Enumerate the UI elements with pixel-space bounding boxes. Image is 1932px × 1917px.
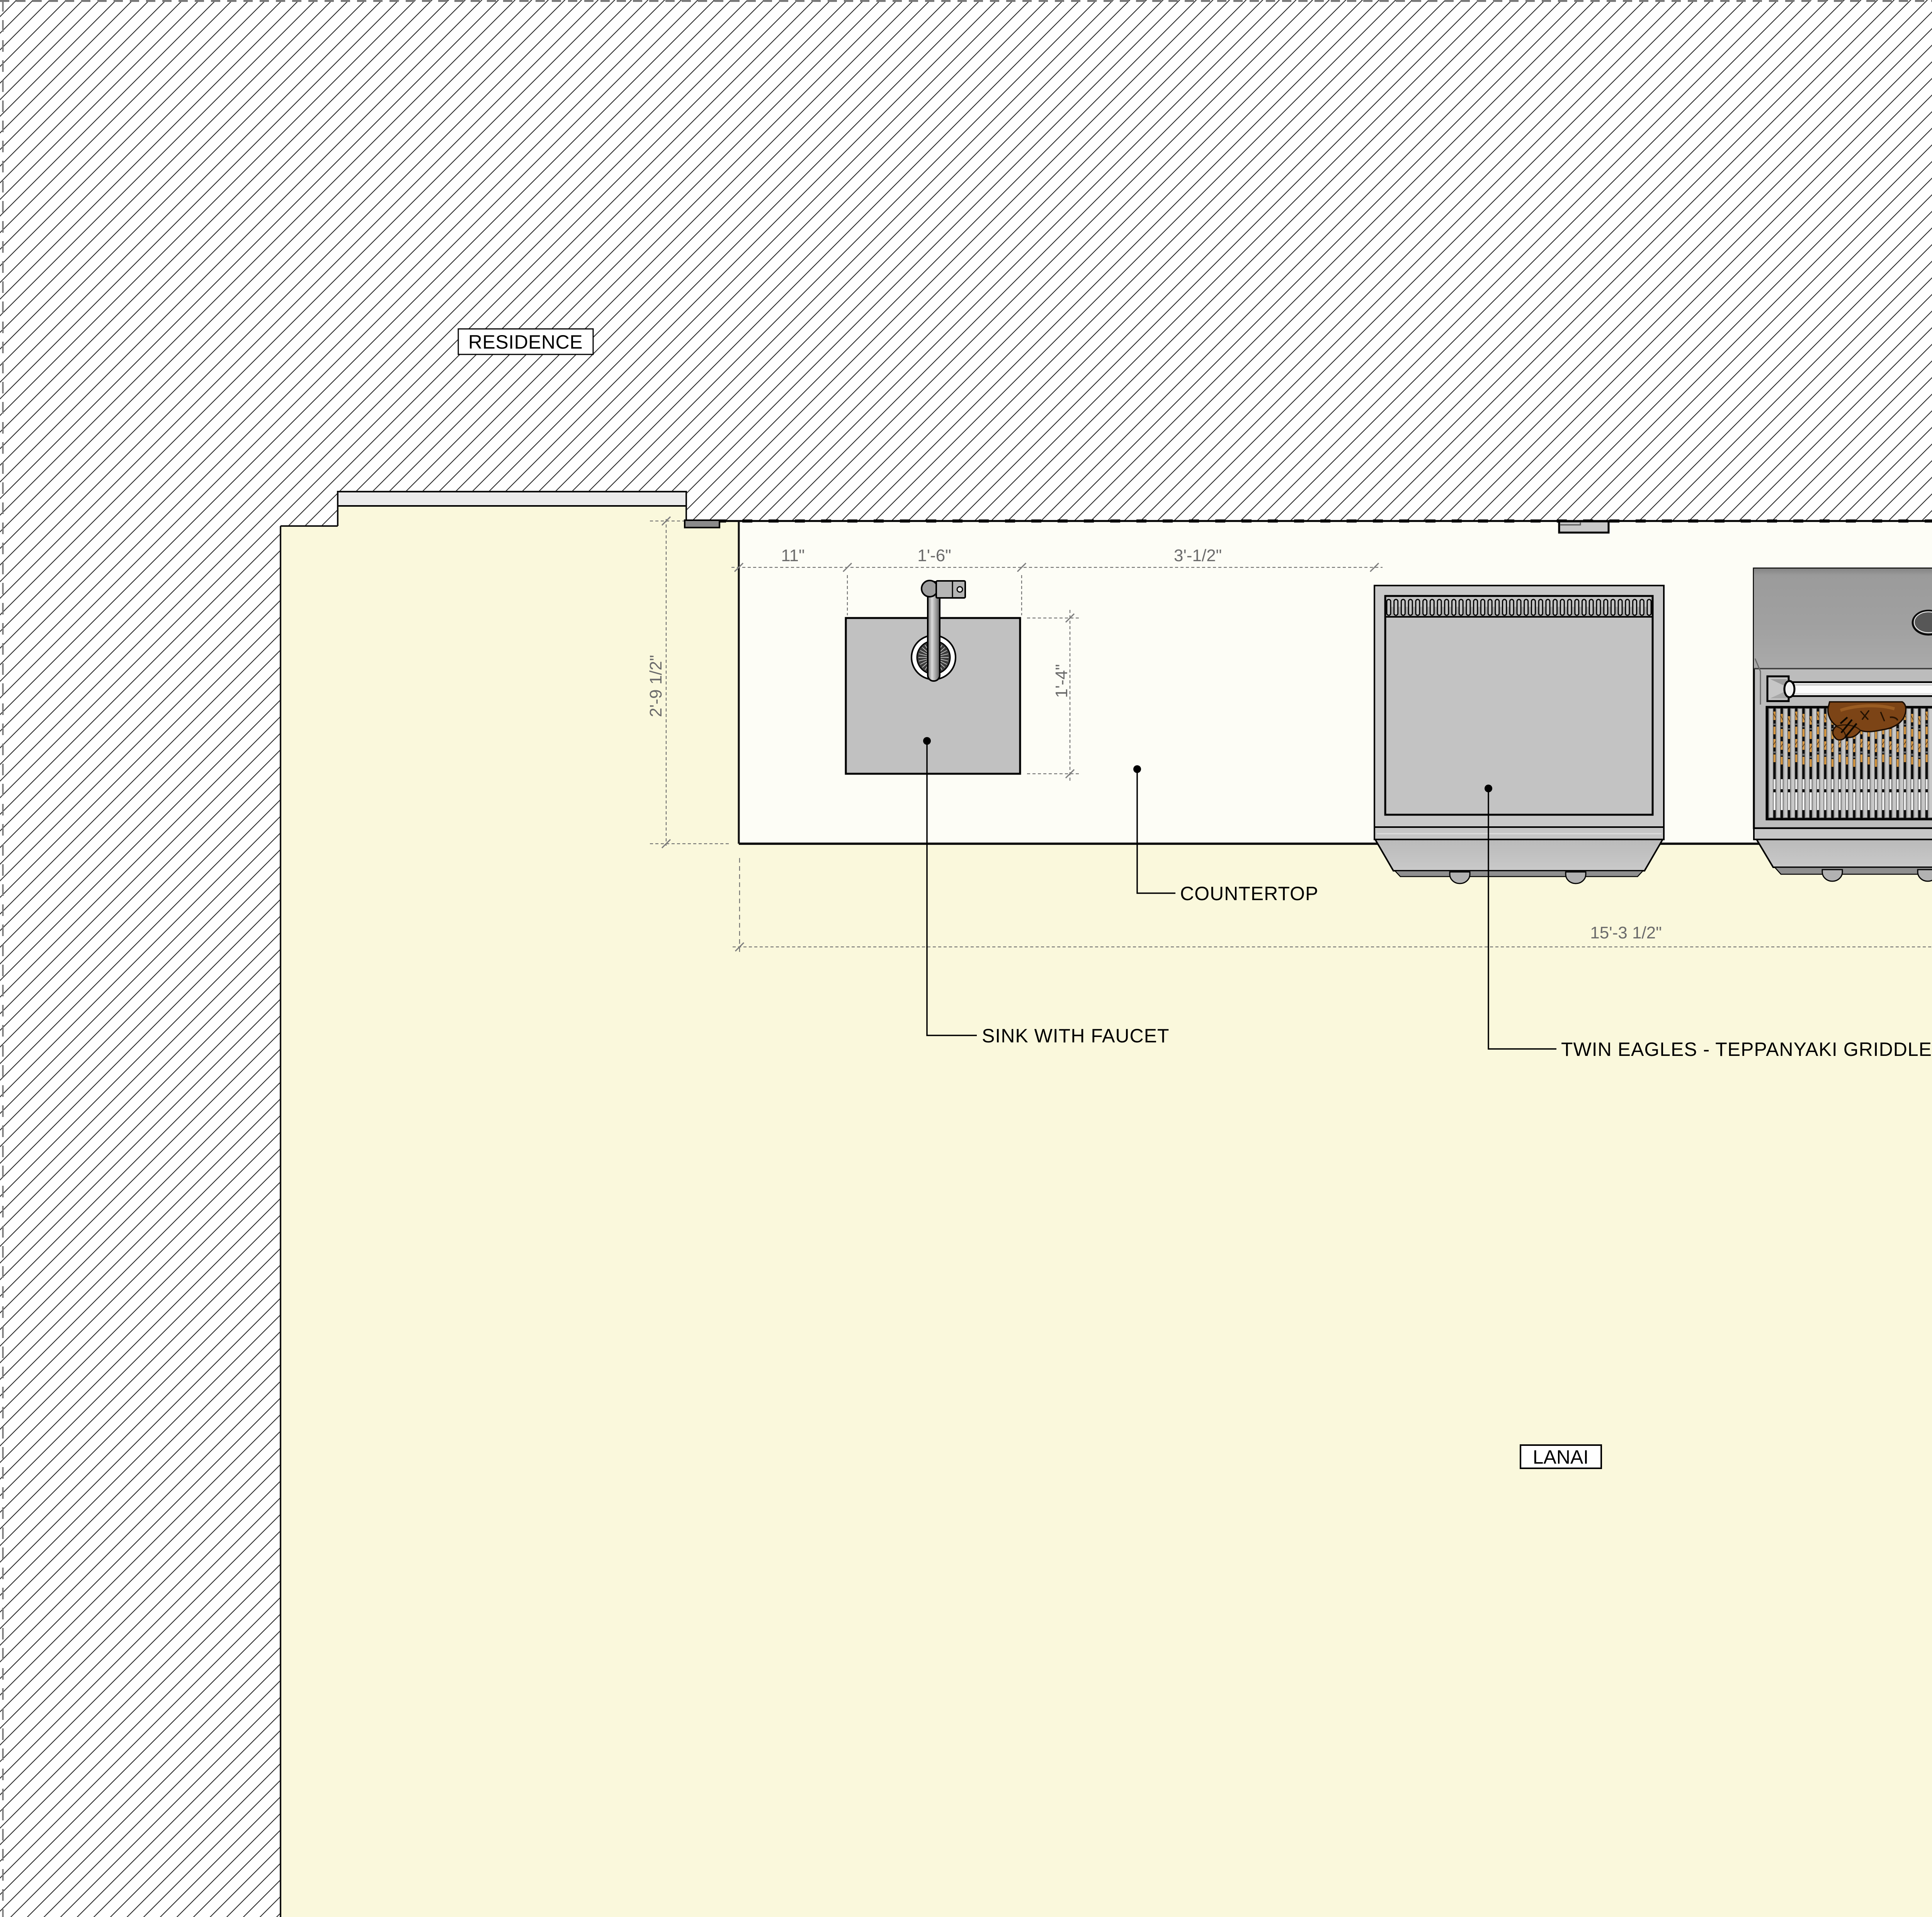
svg-text:2'-9 1/2": 2'-9 1/2" [646, 655, 665, 717]
svg-text:11": 11" [781, 546, 804, 565]
svg-text:SINK WITH FAUCET: SINK WITH FAUCET [982, 1025, 1169, 1047]
svg-text:COUNTERTOP: COUNTERTOP [1180, 883, 1318, 904]
svg-text:TWIN EAGLES - TEPPANYAKI GRIDD: TWIN EAGLES - TEPPANYAKI GRIDDLE [1561, 1039, 1932, 1060]
svg-text:3'-1/2": 3'-1/2" [1174, 546, 1222, 565]
svg-text:1'-4": 1'-4" [1052, 664, 1071, 698]
svg-text:1'-6": 1'-6" [917, 546, 951, 565]
svg-text:RESIDENCE: RESIDENCE [468, 331, 583, 353]
svg-text:LANAI: LANAI [1533, 1446, 1589, 1468]
svg-text:15'-3 1/2": 15'-3 1/2" [1590, 923, 1662, 942]
